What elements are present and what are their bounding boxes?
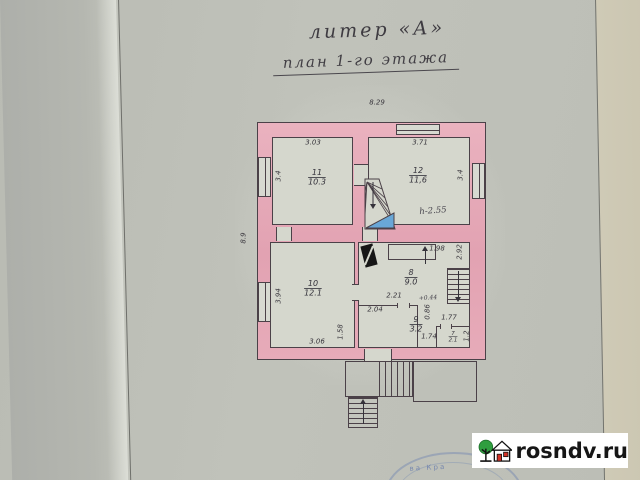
plan-title-floor: план 1-го этажа [272, 48, 459, 76]
window-left-lower [258, 282, 271, 322]
plan-title-liter: литер «А» [308, 17, 445, 44]
dim-hall-width: 2.21 [386, 293, 402, 300]
dim-r12-depth: 3.4 [458, 169, 465, 180]
room-10-label: 10 12.1 [304, 279, 322, 298]
dim-stair-depth: 2.92 [457, 244, 464, 260]
dim-r12-width: 3.71 [412, 140, 428, 147]
window-left-upper [258, 157, 271, 197]
window-top [396, 124, 440, 135]
door-room-9 [397, 303, 410, 308]
porch-up-arrow-icon [360, 399, 366, 404]
door-middle-wall-left [276, 227, 292, 241]
porch-arrow-line [363, 402, 364, 424]
niche-up-arrow-icon [422, 246, 428, 251]
dim-r9-width: 2.04 [367, 307, 383, 314]
dim-overall-height: 8.9 [241, 232, 248, 243]
level-mark-note: +0.44 [419, 294, 438, 302]
ceiling-height-note: h-2.55 [419, 205, 447, 216]
room-12-label: 12 11,6 [409, 166, 427, 185]
room-11-label: 11 10.3 [308, 168, 326, 187]
watermark-site: rosndv.ru [515, 439, 628, 463]
room-8-label: 8 9.0 [405, 268, 418, 287]
dim-r10-depth: 3.94 [276, 288, 283, 304]
dim-wc-depth: 0.86 [425, 304, 432, 320]
door-room-7 [440, 324, 452, 329]
room-7-label: 7 2.1 [449, 330, 458, 343]
dim-r9-depth: 1.58 [338, 324, 345, 340]
dim-r11-depth: 3.4 [276, 170, 283, 181]
house-tree-icon [477, 436, 512, 466]
dim-niche-width: 1.98 [429, 246, 445, 253]
dim-r11-width: 3.03 [305, 140, 321, 147]
porch-landing [413, 361, 477, 402]
stair-down-arrow-icon [455, 297, 461, 302]
dim-overall-width: 8.29 [369, 100, 385, 107]
window-right [472, 163, 485, 199]
stair-arrow-line [458, 271, 459, 298]
dim-r7-width: 1.74 [421, 334, 437, 341]
dim-stair-width: 1.77 [441, 315, 457, 322]
door-exterior-bottom [364, 349, 392, 361]
watermark: rosndv.ru [472, 433, 628, 468]
door-room10-hall [352, 284, 359, 301]
winder-stair [364, 178, 396, 231]
document-photo: ва Кра литер «А» план 1-го этажа [0, 0, 640, 480]
page-right-edge [595, 0, 640, 480]
dim-r7-depth: 1.2 [464, 330, 471, 341]
dim-r10-width: 3.06 [309, 339, 325, 346]
room-9-label: 9 3.2 [410, 315, 423, 334]
stove [359, 243, 379, 269]
porch-steps-hatch [379, 362, 412, 396]
